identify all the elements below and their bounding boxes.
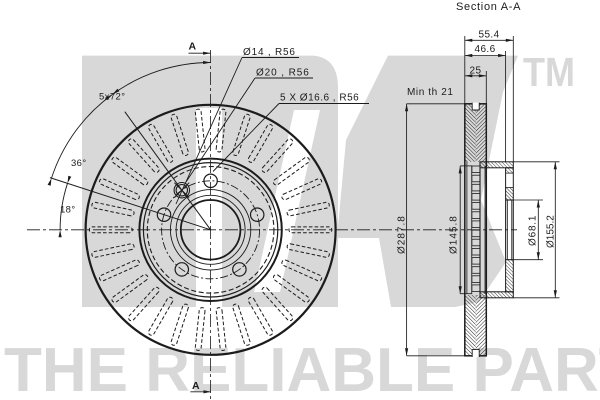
svg-text:Ø14 , R56: Ø14 , R56 (243, 47, 296, 58)
svg-text:Min th 21: Min th 21 (407, 87, 454, 98)
svg-text:A: A (192, 380, 200, 392)
svg-text:25: 25 (470, 66, 482, 77)
svg-text:5x72°: 5x72° (99, 92, 125, 103)
svg-text:Ø68.1: Ø68.1 (528, 215, 539, 246)
svg-text:55.4: 55.4 (479, 30, 500, 41)
svg-text:Ø287.8: Ø287.8 (397, 215, 408, 254)
svg-text:5 X Ø16.6 , R56: 5 X Ø16.6 , R56 (280, 93, 359, 104)
svg-text:Ø155.2: Ø155.2 (546, 215, 557, 248)
svg-text:Section A-A: Section A-A (456, 1, 521, 13)
svg-text:36°: 36° (71, 158, 87, 169)
svg-text:Ø20 , R56: Ø20 , R56 (256, 68, 310, 79)
svg-text:A: A (189, 41, 197, 53)
svg-text:TM: TM (523, 49, 575, 95)
svg-text:46.6: 46.6 (475, 44, 496, 55)
svg-text:THE RELIABLE PART: THE RELIABLE PART (4, 336, 600, 400)
svg-text:Ø145.8: Ø145.8 (449, 215, 460, 254)
svg-text:18°: 18° (60, 205, 76, 216)
